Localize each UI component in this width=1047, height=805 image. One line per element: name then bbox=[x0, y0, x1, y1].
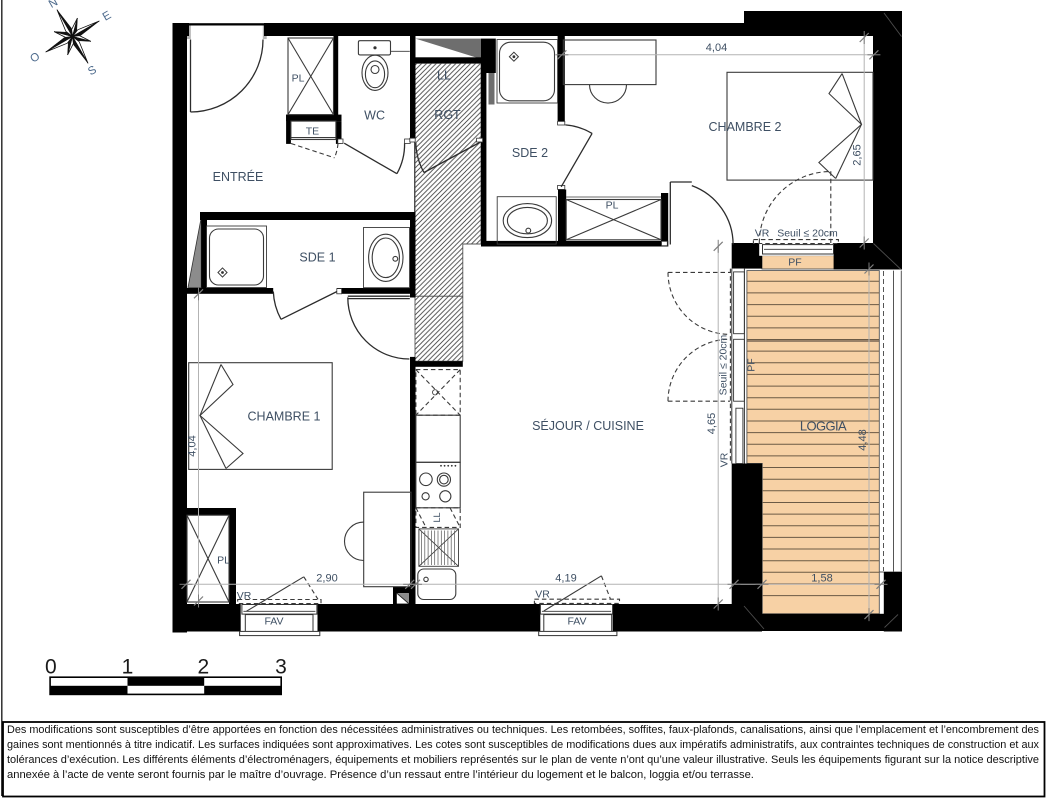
svg-text:gaines sont mentionnés à titre: gaines sont mentionnés à titre indicatif… bbox=[7, 739, 1039, 751]
svg-text:4,04: 4,04 bbox=[187, 435, 199, 456]
svg-text:PL: PL bbox=[292, 73, 305, 85]
svg-text:1: 1 bbox=[122, 656, 134, 679]
svg-text:ENTRÉE: ENTRÉE bbox=[213, 169, 264, 184]
svg-text:Des modifications sont suscept: Des modifications sont susceptibles d’êt… bbox=[7, 724, 1039, 736]
svg-text:SDE 2: SDE 2 bbox=[512, 146, 548, 160]
svg-text:LOGGIA: LOGGIA bbox=[800, 419, 847, 434]
svg-text:Seuil ≤ 20cm: Seuil ≤ 20cm bbox=[777, 227, 838, 239]
svg-text:2,65: 2,65 bbox=[852, 144, 864, 165]
svg-text:LL: LL bbox=[437, 69, 451, 83]
svg-text:VR: VR bbox=[535, 589, 550, 601]
svg-text:PL: PL bbox=[606, 200, 619, 212]
svg-text:0: 0 bbox=[45, 656, 57, 679]
svg-text:FAV: FAV bbox=[264, 616, 283, 628]
svg-text:SDE 1: SDE 1 bbox=[299, 251, 335, 265]
svg-text:tolérances d’exécution. Les di: tolérances d’exécution. Les différents é… bbox=[7, 754, 1039, 766]
svg-text:4,48: 4,48 bbox=[857, 429, 869, 450]
svg-text:annexée à l’acte de vente sero: annexée à l’acte de vente seront fournis… bbox=[7, 769, 754, 781]
svg-text:2: 2 bbox=[197, 656, 209, 679]
svg-text:Seuil ≤ 20cm: Seuil ≤ 20cm bbox=[718, 334, 730, 395]
svg-text:4,65: 4,65 bbox=[706, 413, 718, 434]
svg-text:3: 3 bbox=[275, 656, 287, 679]
svg-text:CHAMBRE 2: CHAMBRE 2 bbox=[709, 120, 782, 134]
svg-text:CHAMBRE 1: CHAMBRE 1 bbox=[248, 410, 321, 424]
svg-text:PL: PL bbox=[217, 555, 230, 567]
svg-text:VR: VR bbox=[755, 227, 770, 239]
svg-text:VR: VR bbox=[719, 452, 731, 467]
svg-text:2,90: 2,90 bbox=[316, 573, 337, 585]
svg-text:WC: WC bbox=[364, 109, 385, 123]
svg-text:4,04: 4,04 bbox=[706, 42, 727, 54]
svg-text:PF: PF bbox=[746, 358, 758, 371]
svg-text:TE: TE bbox=[306, 126, 319, 138]
svg-text:RGT: RGT bbox=[434, 108, 461, 122]
svg-text:1,58: 1,58 bbox=[811, 573, 832, 585]
svg-text:LL: LL bbox=[432, 512, 442, 522]
svg-text:4,19: 4,19 bbox=[555, 573, 576, 585]
svg-text:SÉJOUR / CUISINE: SÉJOUR / CUISINE bbox=[532, 418, 644, 433]
svg-text:PF: PF bbox=[788, 257, 801, 269]
svg-text:FAV: FAV bbox=[567, 616, 586, 628]
svg-text:VR: VR bbox=[237, 590, 252, 602]
